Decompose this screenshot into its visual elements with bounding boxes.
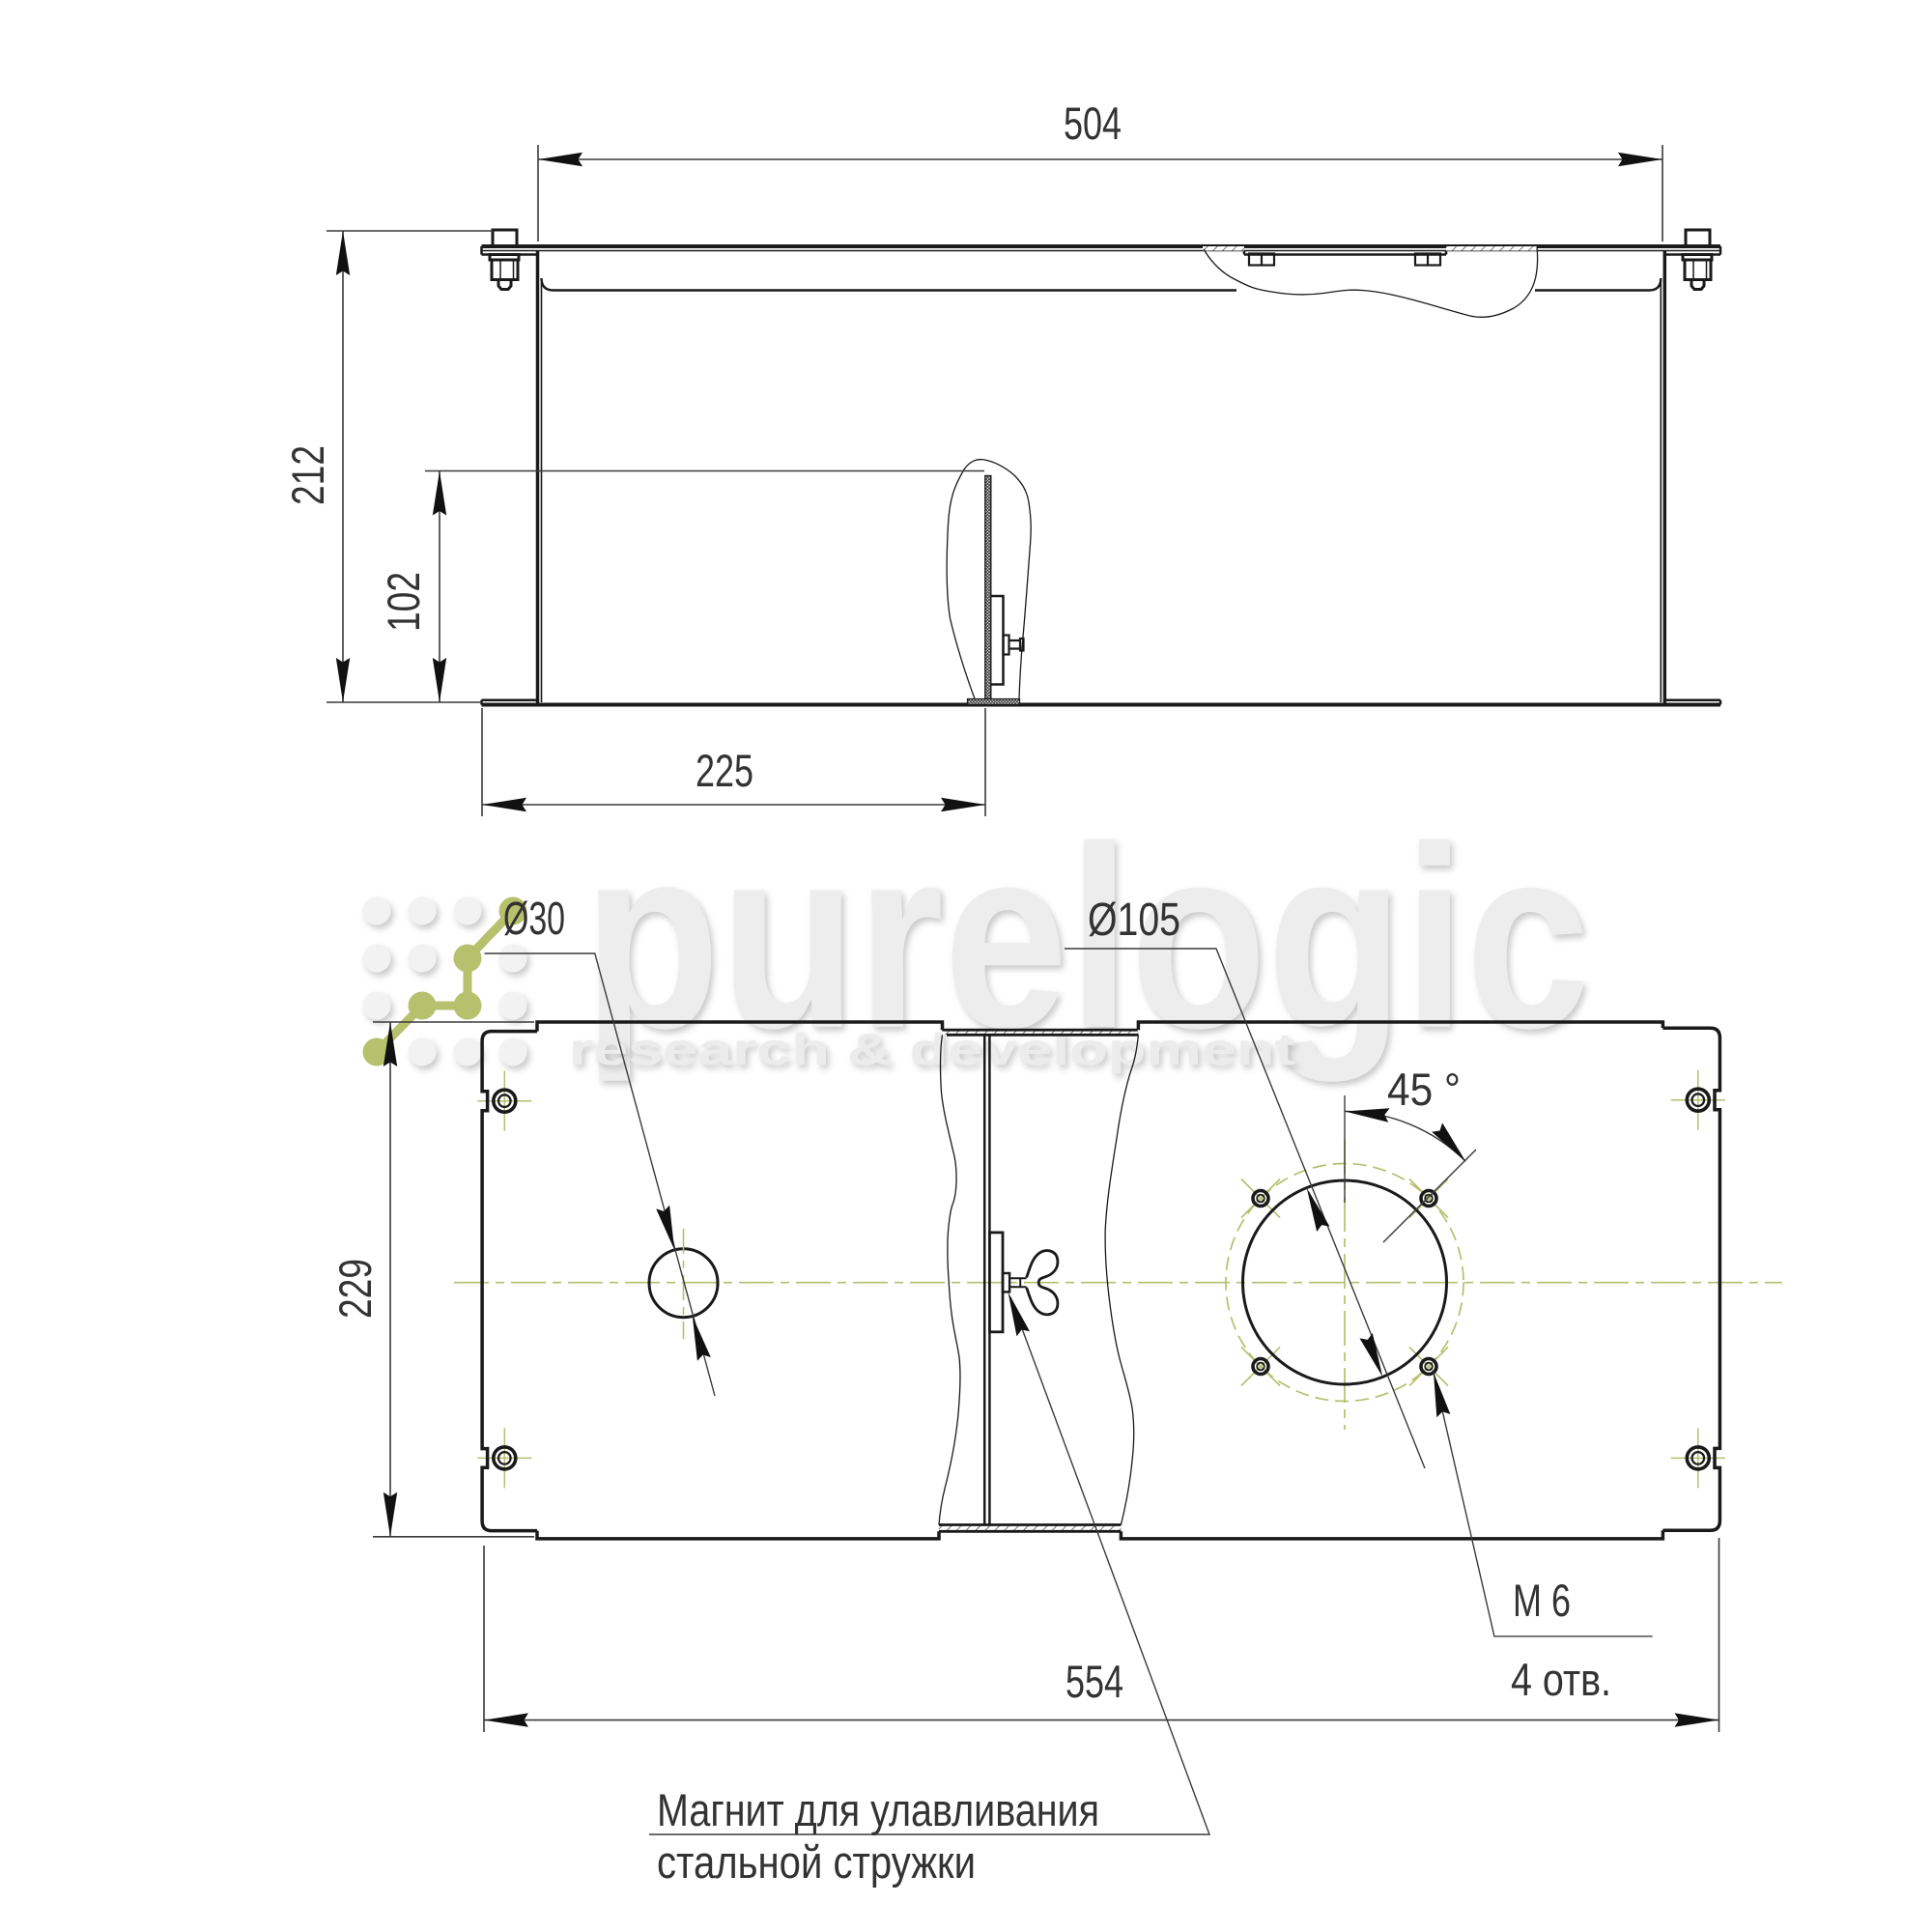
svg-text:М 6: М 6: [1513, 1575, 1571, 1626]
svg-text:554: 554: [1065, 1656, 1123, 1707]
svg-text:Ø105: Ø105: [1088, 895, 1180, 946]
svg-text:229: 229: [329, 1259, 381, 1319]
svg-text:45 °: 45 °: [1387, 1064, 1461, 1115]
svg-text:504: 504: [1064, 98, 1122, 149]
svg-text:4 отв.: 4 отв.: [1511, 1654, 1611, 1705]
svg-text:Ø30: Ø30: [503, 894, 565, 945]
svg-text:212: 212: [282, 445, 333, 505]
svg-text:225: 225: [696, 745, 753, 796]
svg-text:102: 102: [378, 572, 429, 632]
svg-text:стальной стружки: стальной стружки: [657, 1836, 976, 1888]
svg-text:research & development: research & development: [569, 1024, 1295, 1074]
svg-text:Магнит для улавливания: Магнит для улавливания: [657, 1784, 1099, 1835]
